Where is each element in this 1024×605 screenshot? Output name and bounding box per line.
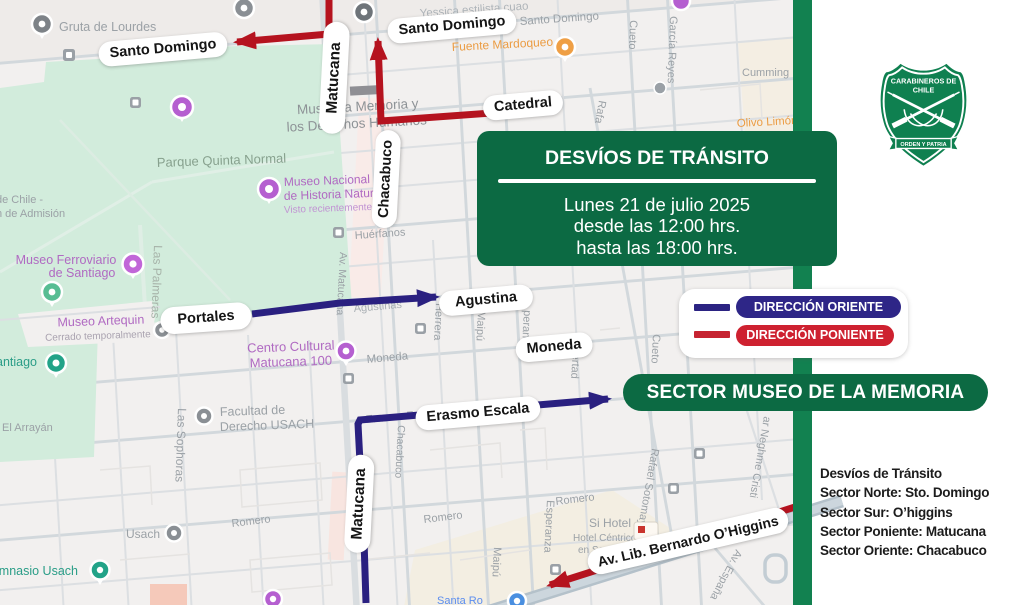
svg-text:Maipú: Maipú <box>473 311 487 342</box>
svg-text:Santa Ro: Santa Ro <box>437 595 483 605</box>
svg-text:Si Hotel: Si Hotel <box>589 516 631 530</box>
svg-text:Cumming: Cumming <box>742 67 789 79</box>
svg-text:ORDEN Y PATRIA: ORDEN Y PATRIA <box>900 142 946 148</box>
svg-text:Museo Ferroviario: Museo Ferroviario <box>16 253 117 267</box>
svg-text:Maipú: Maipú <box>489 547 503 578</box>
svg-text:CARABINEROS DE: CARABINEROS DE <box>891 77 957 86</box>
svg-text:CHILE: CHILE <box>913 86 935 95</box>
svg-text:García Reyes: García Reyes <box>665 16 679 84</box>
svg-text:Usach: Usach <box>126 527 160 541</box>
svg-text:de Santiago: de Santiago <box>49 266 116 280</box>
svg-text:antiago: antiago <box>0 355 37 369</box>
svg-text:Gruta de Lourdes: Gruta de Lourdes <box>59 20 156 34</box>
svg-text:Facultad de: Facultad de <box>220 403 286 419</box>
svg-text:imnasio Usach: imnasio Usach <box>0 564 78 578</box>
svg-text:n de Admisión: n de Admisión <box>0 208 65 220</box>
svg-text:de Chile -: de Chile - <box>0 194 43 206</box>
svg-text:Las Sophoras: Las Sophoras <box>172 408 189 483</box>
svg-text:Cueto: Cueto <box>626 20 639 50</box>
svg-text:Matucana 100: Matucana 100 <box>249 353 332 371</box>
svg-text:El Arrayán: El Arrayán <box>2 422 53 434</box>
svg-text:Cueto: Cueto <box>648 334 662 364</box>
svg-text:Las Palmeras: Las Palmeras <box>148 245 165 319</box>
